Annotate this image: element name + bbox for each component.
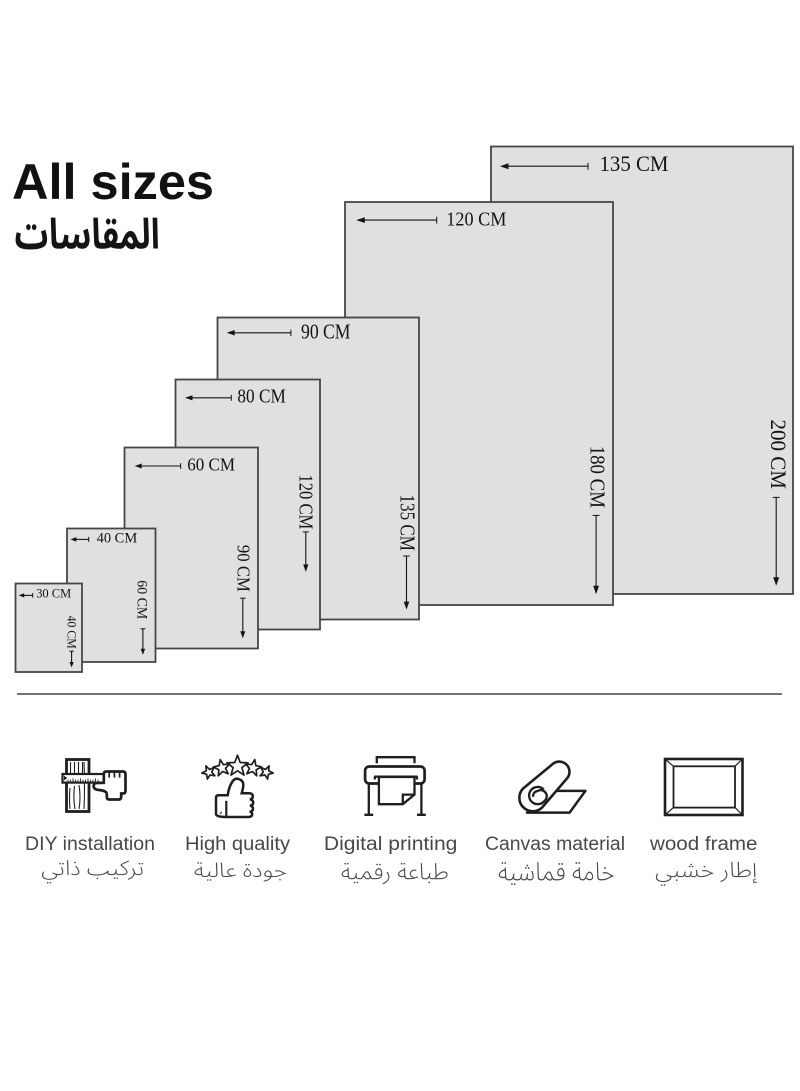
svg-text:Digital printing: Digital printing [324,834,458,855]
svg-text:wood frame: wood frame [649,834,758,855]
svg-text:80 CM: 80 CM [237,387,285,408]
svg-text:40 CM: 40 CM [97,531,138,547]
svg-text:Canvas material: Canvas material [485,834,625,855]
svg-text:90 CM: 90 CM [234,545,254,592]
svg-text:200 CM: 200 CM [766,420,791,490]
svg-text:120 CM: 120 CM [446,208,506,230]
svg-text:DIY installation: DIY installation [25,834,155,855]
svg-text:180 CM: 180 CM [586,446,610,509]
svg-text:30 CM: 30 CM [36,585,71,600]
svg-text:All sizes: All sizes [12,154,214,210]
svg-text:135 CM: 135 CM [396,495,420,552]
svg-text:High quality: High quality [185,834,291,855]
svg-text:135 CM: 135 CM [600,151,669,176]
svg-text:60 CM: 60 CM [187,455,235,475]
svg-text:40 CM: 40 CM [65,616,80,649]
svg-text:60 CM: 60 CM [134,580,150,619]
svg-text:90 CM: 90 CM [301,320,351,344]
svg-text:120 CM: 120 CM [295,474,316,529]
